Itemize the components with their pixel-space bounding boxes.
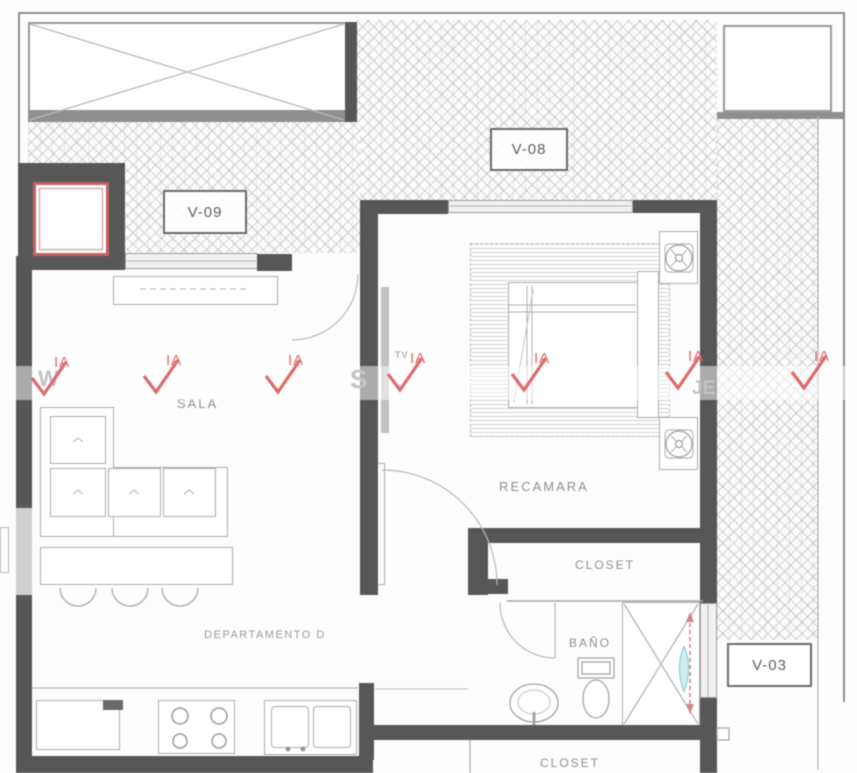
sink-basin bbox=[313, 706, 351, 748]
room-label-bano: BAÑO bbox=[555, 636, 625, 650]
column-highlight bbox=[33, 182, 109, 256]
window-v09 bbox=[125, 253, 258, 269]
entry-door-arc bbox=[292, 274, 358, 340]
nightstand bbox=[659, 417, 698, 470]
shower bbox=[622, 602, 700, 726]
boundary-left-line bbox=[18, 12, 20, 164]
void-shaft bbox=[28, 22, 357, 122]
floor-plan-image: V-09 V-08 V-03 SALA RECAMARA CLOSET BAÑO… bbox=[0, 0, 857, 773]
sofa-cushion bbox=[50, 416, 106, 464]
window-v03 bbox=[700, 603, 717, 698]
entry-door-leaf bbox=[257, 254, 292, 271]
wall-bathroom-bottom bbox=[373, 725, 710, 740]
stove bbox=[158, 700, 235, 754]
unit-label: DEPARTAMENTO D bbox=[185, 629, 345, 641]
bar-stools bbox=[60, 588, 198, 606]
bedroom-door-leaf bbox=[377, 463, 385, 585]
watermark-ghost-letter: S bbox=[350, 364, 367, 395]
floor-plan: V-09 V-08 V-03 SALA RECAMARA CLOSET BAÑO… bbox=[0, 0, 857, 773]
sofa-cushion bbox=[108, 468, 161, 517]
console-table bbox=[113, 276, 278, 305]
wall-closet-top bbox=[488, 528, 710, 543]
room-label-closet-upper: CLOSET bbox=[550, 558, 660, 572]
niche-bottom-band bbox=[717, 112, 845, 119]
via-watermark: IA bbox=[264, 354, 322, 396]
window-tag-v03: V-03 bbox=[727, 643, 812, 687]
niche-box bbox=[723, 25, 832, 112]
via-watermark: IA bbox=[790, 350, 848, 392]
bathroom-sink-icon bbox=[510, 684, 558, 725]
refrigerator-handle bbox=[103, 700, 123, 710]
via-watermark: IA bbox=[142, 354, 200, 396]
nightstand bbox=[659, 231, 698, 284]
boundary-top-line bbox=[18, 12, 845, 14]
bathroom-door-arc bbox=[500, 603, 555, 658]
terrace-hatch-top bbox=[357, 20, 717, 203]
via-watermark: IA bbox=[664, 350, 722, 392]
room-label-recamara: RECAMARA bbox=[483, 479, 605, 494]
sink-basin bbox=[271, 706, 309, 748]
void-shaft-right-wall bbox=[345, 22, 357, 122]
room-label-closet-lower: CLOSET bbox=[515, 756, 625, 770]
wall-right-upper bbox=[700, 200, 717, 605]
window-tag-v08: V-08 bbox=[490, 128, 568, 171]
wall-left-lower bbox=[16, 595, 32, 760]
bar-counter bbox=[40, 547, 233, 585]
window-left bbox=[16, 508, 32, 596]
wall-divider-lower bbox=[359, 683, 374, 760]
via-watermark: IA bbox=[386, 352, 444, 394]
sofa-cushion bbox=[163, 468, 216, 517]
wall-detail-box bbox=[717, 728, 729, 740]
toilet-icon bbox=[578, 658, 614, 718]
via-watermark: IA bbox=[510, 352, 568, 394]
void-shaft-bottom-band bbox=[28, 110, 357, 122]
sofa-cushion bbox=[50, 468, 106, 517]
wall-bottom bbox=[16, 756, 373, 773]
wall-closet-jamb bbox=[468, 579, 508, 594]
window-tag-v09: V-09 bbox=[163, 190, 247, 234]
window-v08 bbox=[448, 200, 633, 213]
via-watermark: IA bbox=[30, 356, 88, 398]
exterior-ledge bbox=[0, 527, 9, 573]
wall-bedroom-top-left bbox=[360, 200, 448, 214]
